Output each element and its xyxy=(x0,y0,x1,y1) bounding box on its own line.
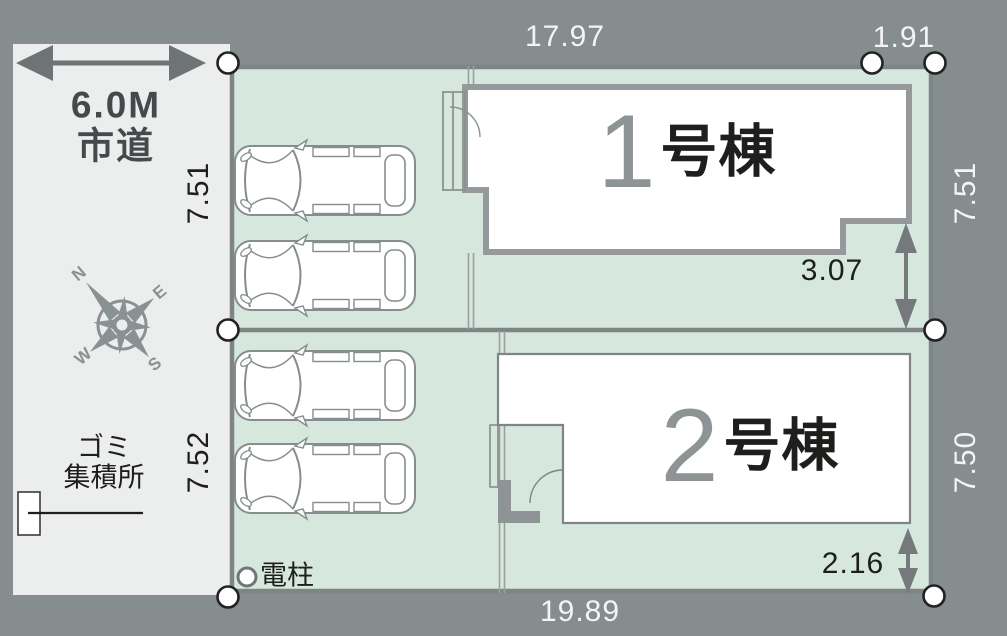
garbage-station-label: ゴミ 集積所 xyxy=(64,433,145,492)
road-width-label: 6.0M xyxy=(71,87,161,124)
dim-bottom-width: 19.89 xyxy=(540,597,620,627)
dim-lot1-right: 7.51 xyxy=(951,162,981,224)
building-2-suffix: 号棟 xyxy=(723,419,839,476)
building-2-number: 2 xyxy=(661,400,719,494)
dim-top-offset: 1.91 xyxy=(873,23,935,53)
boundary-marker-n2 xyxy=(862,53,883,74)
dim-lot2-left: 7.52 xyxy=(184,431,214,493)
garbage-station-label-line2: 集積所 xyxy=(64,463,145,493)
car-2 xyxy=(235,235,415,316)
site-plan: N E S W 17.97 1.91 7.51 7.51 3.07 7.52 7… xyxy=(0,0,1007,636)
road-type-label: 市道 xyxy=(77,128,155,165)
dim-lot2-right: 7.50 xyxy=(951,431,981,493)
dim-lot1-left: 7.51 xyxy=(184,162,214,224)
boundary-marker-e-mid xyxy=(925,320,946,341)
car-1 xyxy=(235,140,415,221)
building-2-label: 2 号棟 xyxy=(661,400,840,494)
car-4 xyxy=(235,438,415,519)
utility-pole-label: 電柱 xyxy=(260,563,314,590)
dim-lot2-gap: 2.16 xyxy=(822,549,884,579)
car-3 xyxy=(235,345,415,426)
garbage-station-label-line1: ゴミ xyxy=(64,433,145,463)
boundary-marker-w-mid xyxy=(218,320,239,341)
building-1-suffix: 号棟 xyxy=(660,125,776,182)
building-1-number: 1 xyxy=(598,106,656,200)
boundary-marker-sw xyxy=(218,587,239,608)
boundary-marker-se xyxy=(924,586,945,607)
utility-pole-marker xyxy=(238,568,256,586)
boundary-marker-nw xyxy=(218,53,239,74)
building-1-label: 1 号棟 xyxy=(598,106,777,200)
boundary-marker-ne xyxy=(925,53,946,74)
dim-lot1-gap: 3.07 xyxy=(801,256,863,286)
dim-top-width: 17.97 xyxy=(525,22,605,52)
